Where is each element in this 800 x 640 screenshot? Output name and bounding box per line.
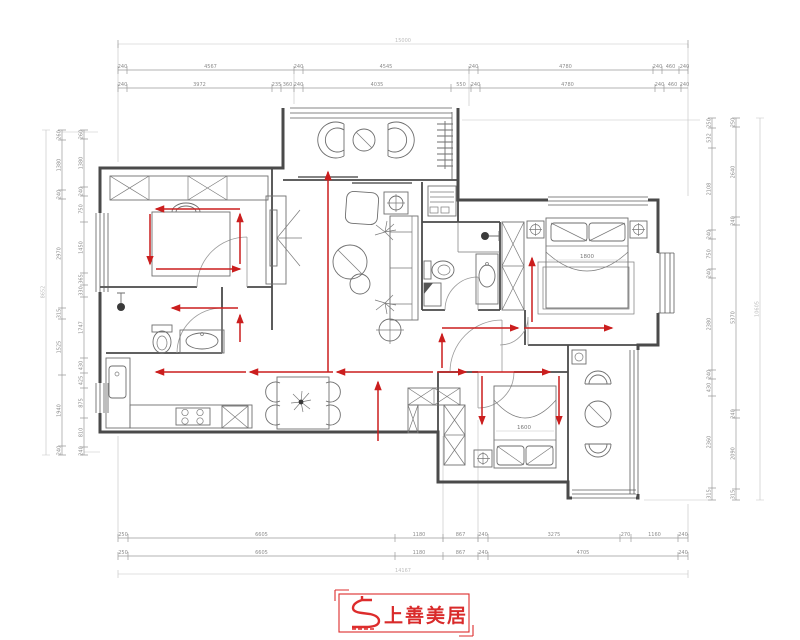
dim-label: 4035: [371, 82, 384, 88]
armchair: [388, 122, 414, 158]
bath1-door: [177, 308, 222, 353]
dim-label: 235: [272, 82, 282, 88]
dim-label: 1380: [79, 157, 85, 170]
washer-corner: [424, 283, 433, 294]
dining-chair: [266, 405, 280, 425]
wardrobe: [110, 176, 268, 200]
table-plant-center: [299, 400, 304, 405]
dining-chair: [326, 382, 340, 402]
dim-label: 260: [79, 130, 85, 140]
dim-label: 240: [294, 82, 304, 88]
armchair: [318, 122, 344, 158]
dim-label: 240: [79, 187, 85, 197]
exterior-walls: [100, 108, 658, 498]
wall-lamp-dot: [117, 303, 125, 311]
dim-label: 240: [678, 532, 688, 538]
dim-extension-lines: [62, 44, 712, 542]
brand-name: 上善美居: [384, 604, 468, 627]
dim-label: 1450: [79, 241, 85, 254]
dim-label: 15000: [395, 38, 411, 44]
floor-plan-canvas: 15000 240 4567 240 4545 240 4780 240 460…: [0, 0, 800, 640]
dim-label: 2380: [707, 318, 713, 331]
dim-label: 315: [57, 309, 63, 319]
dim-label: 4705: [577, 550, 590, 556]
kitchen-sink: [109, 366, 126, 398]
dim-label: 1525: [57, 341, 63, 354]
dim-label: 240: [678, 550, 688, 556]
sofa-plant: [375, 221, 396, 240]
dining-chair: [266, 382, 280, 402]
round-table-divider: [356, 132, 372, 148]
floor-plan-page: 15000 240 4567 240 4545 240 4780 240 460…: [0, 0, 800, 640]
dim-label: 240: [731, 409, 737, 419]
dim-label: 425: [79, 376, 85, 386]
dim-label: 1940: [57, 404, 63, 417]
dim-label: 240: [57, 190, 63, 200]
dim-label: 1180: [413, 532, 426, 538]
dim-label: 532: [707, 133, 713, 143]
bathroom1: [152, 325, 224, 353]
dim-label: 250: [118, 550, 128, 556]
dim-label: 875: [79, 398, 85, 408]
dim-label: 240: [79, 446, 85, 456]
dim-label: 8652: [41, 286, 47, 299]
dim-label: 6605: [255, 550, 268, 556]
dim-label: 3972: [193, 82, 206, 88]
dim-label: 240: [707, 230, 713, 240]
tv: [270, 210, 277, 266]
dim-label: 2108: [707, 183, 713, 196]
dim-label: 250: [118, 532, 128, 538]
dim-label: 810: [79, 428, 85, 438]
dim-label: 250: [707, 118, 713, 128]
dim-label: 315: [707, 489, 713, 499]
shower-head: [481, 232, 489, 240]
dim-label: 240: [471, 82, 481, 88]
water-heater: [572, 350, 586, 364]
bed-width-label: 1600: [517, 425, 531, 431]
stove: [176, 408, 210, 425]
balcony-bottom: [572, 350, 611, 457]
logo-mark-icon: [352, 596, 379, 627]
dim-label: 867: [456, 532, 466, 538]
dim-label: 10605: [755, 301, 761, 317]
dim-label: 2640: [731, 166, 737, 179]
dim-label: 1747: [79, 321, 85, 334]
dim-label: 240: [57, 446, 63, 456]
toilet2-bowl: [432, 261, 454, 279]
sink2-basin: [479, 265, 495, 287]
bed-width-label: 1800: [580, 254, 594, 260]
dim-label: 460: [668, 82, 678, 88]
interior-walls: [100, 168, 658, 482]
dim-label: 430: [707, 383, 713, 393]
dim-label: 240: [680, 82, 690, 88]
bathroom2: [424, 222, 500, 306]
dim-label: 250: [731, 118, 737, 128]
living-room: [266, 186, 456, 344]
dining-chair: [326, 405, 340, 425]
master-bedroom: 1800: [502, 218, 647, 314]
balcony-chair: [585, 371, 611, 384]
dim-label: 240: [653, 64, 663, 70]
side-table: [350, 274, 370, 294]
dim-label: 460: [666, 64, 676, 70]
dim-label: 240: [707, 269, 713, 279]
dim-label: 550: [456, 82, 466, 88]
dim-label: 240: [469, 64, 479, 70]
dim-label: 240: [731, 216, 737, 226]
dims-top: 15000 240 4567 240 4545 240 4780 240 460…: [118, 38, 690, 92]
counter-bottom: [130, 405, 252, 428]
dim-label: 430: [79, 361, 85, 371]
dims-left: 8652 260 1380 240 2970 315 1525 1940 240…: [41, 130, 89, 456]
dim-label: 260: [57, 130, 63, 140]
ac-unit: [428, 186, 456, 216]
master-bedroom-door: [500, 317, 528, 345]
balcony-top: [318, 121, 453, 169]
dim-label: 14167: [395, 568, 411, 574]
kitchen: [106, 358, 252, 428]
dim-label: 1380: [57, 159, 63, 172]
dim-label: 1180: [413, 550, 426, 556]
bed-rug: [538, 262, 634, 314]
dim-label: 360: [283, 82, 293, 88]
bed1-headboard: [172, 203, 200, 212]
dim-label: 4567: [204, 64, 217, 70]
wall-lamp: [117, 293, 125, 303]
sofa-plant: [375, 295, 396, 314]
floor-mat: [345, 191, 379, 225]
dim-label: 240: [118, 64, 128, 70]
dim-label: 240: [707, 370, 713, 380]
dim-label: 240: [478, 550, 488, 556]
drying-rack: [437, 121, 453, 169]
dims-right: 10605 250 532 2108 240 750 240 2380 240 …: [707, 118, 765, 500]
dim-label: 4780: [559, 64, 572, 70]
dims-bottom: 250 6605 1180 867 240 3275 270 1160 240 …: [118, 532, 688, 578]
dim-label: 365: [79, 274, 85, 284]
dim-label: 240: [118, 82, 128, 88]
dim-label: 240: [478, 532, 488, 538]
dim-label: 867: [456, 550, 466, 556]
dim-label: 2360: [707, 436, 713, 449]
toilet2-tank: [424, 261, 431, 279]
shower-partition: [458, 222, 500, 252]
tv-cabinet: [266, 196, 286, 284]
dim-label: 750: [79, 204, 85, 214]
dim-label: 330: [79, 286, 85, 296]
dim-label: 6605: [255, 532, 268, 538]
dim-label: 3275: [548, 532, 561, 538]
dim-label: 240: [680, 64, 690, 70]
dim-label: 750: [707, 249, 713, 259]
dim-label: 4545: [380, 64, 393, 70]
dim-label: 5370: [731, 311, 737, 324]
bath2-door: [445, 277, 478, 310]
brand-logo: 上善美居: [335, 590, 473, 636]
bedroom1: [110, 176, 268, 311]
dim-label: 270: [621, 532, 631, 538]
dim-label: 4780: [561, 82, 574, 88]
dim-label: 240: [655, 82, 665, 88]
dining-area: [266, 377, 341, 429]
dim-label: 1160: [648, 532, 661, 538]
balcony-chair: [585, 444, 611, 457]
dim-label: 315: [731, 490, 737, 500]
dim-label: 2970: [57, 247, 63, 260]
bed1: [152, 212, 230, 276]
dim-label: 2090: [731, 447, 737, 460]
dim-label: 240: [294, 64, 304, 70]
